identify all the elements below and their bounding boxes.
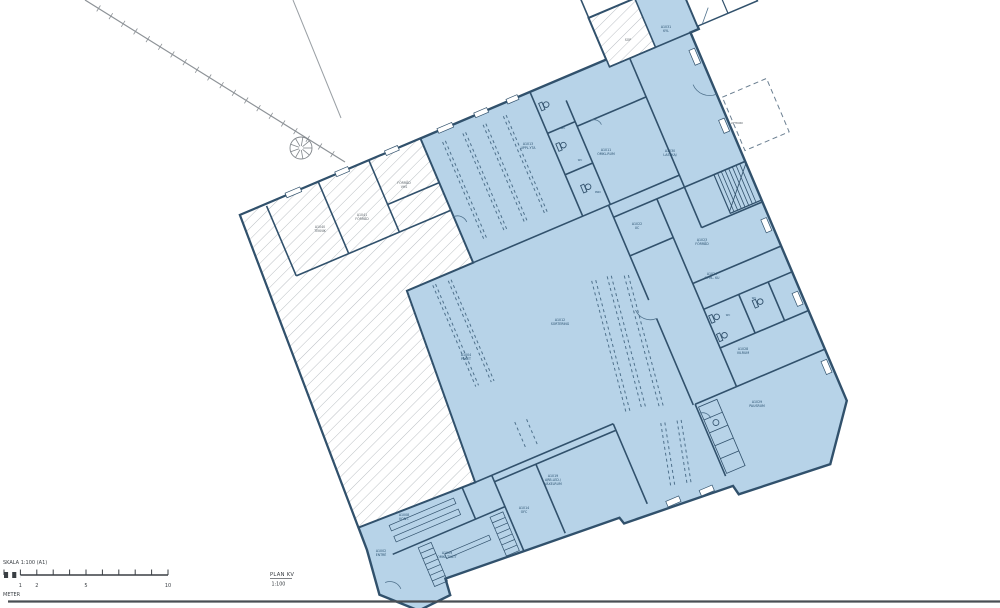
spiral-stair-step (296, 139, 301, 147)
spiral-stair-step (301, 137, 303, 146)
scale-tick-label: 5 (84, 583, 87, 589)
boundary-tick (281, 121, 285, 127)
boundary-tick (232, 90, 236, 96)
room-label: WC (578, 158, 583, 162)
room-label: WC (726, 313, 731, 317)
room-label: A1030LASTKAJ (663, 149, 676, 157)
room-label: A1028VILRUM (737, 347, 749, 355)
floor-plan-svg: A1040TEKNIKA1041FÖRRÅDFÖRRÅDVHSSOPA1031K… (0, 0, 1000, 608)
boundary-tick (171, 52, 175, 58)
scale-tick-label: 1 (19, 583, 22, 589)
spiral-stair-step (291, 144, 299, 147)
boundary-tick (97, 6, 101, 12)
spiral-stair-step (291, 149, 299, 152)
room-label: WC (561, 126, 566, 130)
wall-stub (576, 0, 589, 18)
boundary-tick (244, 98, 248, 104)
scale-tick-label: 10 (165, 583, 171, 589)
spiral-stair-icon (290, 137, 312, 159)
boundary-tick (269, 113, 273, 119)
room-label: LYFTBORD (731, 122, 743, 125)
scale-bar-ticks (4, 570, 168, 576)
plan-title-scale: 1:100 (272, 582, 286, 588)
room-label: A1040TEKNIK (313, 225, 326, 233)
boundary-tick (134, 29, 138, 35)
room-label: A1004PAKET (461, 353, 471, 361)
room-label: A1008KONT. (399, 513, 409, 521)
boundary-tick (146, 36, 150, 42)
site-boundary (85, 0, 345, 162)
scale-bar: SKALA 1:100 (A1) 1 2 5 10 METER (3, 560, 171, 598)
boundary-tick (158, 44, 162, 50)
room-label: RWC (595, 190, 601, 194)
room-label: A1041FÖRRÅD (355, 213, 369, 221)
boundary-tick (220, 82, 224, 88)
room-label: WC (752, 296, 757, 300)
boundary-tick (318, 144, 322, 150)
drawing-sheet: A1040TEKNIKA1041FÖRRÅDFÖRRÅDVHSSOPA1031K… (0, 0, 1000, 608)
boundary-tick (195, 67, 199, 73)
room-label: A1002ENTRÉ (376, 549, 387, 557)
spiral-stair-step (301, 150, 303, 159)
boundary-tick (109, 13, 113, 19)
spiral-stair-step (303, 149, 310, 155)
plan-title: PLAN KV 1:100 (270, 572, 294, 588)
title-block: SKALA 1:100 (A1) 1 2 5 10 METER PLAN KV … (3, 560, 1000, 602)
scale-tick-label: 2 (35, 583, 38, 589)
boundary-tick (121, 21, 125, 27)
building-plan (191, 0, 935, 608)
existing-wall-stub (293, 0, 341, 118)
scale-label: SKALA 1:100 (A1) (3, 560, 47, 566)
boundary-tick (208, 75, 212, 81)
scale-bar-block-gap (8, 572, 12, 578)
room-label: A1023FÖRRÅD (695, 238, 709, 246)
room-label: SOP (625, 38, 632, 42)
boundary-tick (183, 59, 187, 65)
boundary-tick (331, 151, 335, 157)
plan-title-text: PLAN KV (270, 572, 294, 578)
boundary-tick (294, 128, 298, 134)
scale-bar-block-gap (16, 572, 20, 578)
boundary-tick (257, 105, 261, 111)
meter-label: METER (3, 592, 21, 598)
spiral-stair-step (296, 150, 301, 158)
